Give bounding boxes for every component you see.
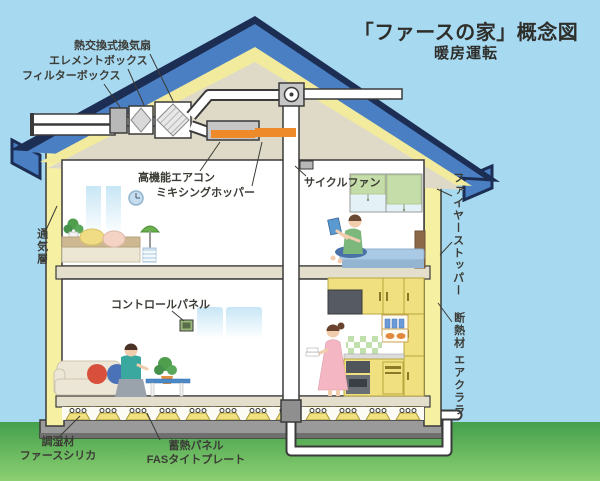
cycle-fan-unit [300, 161, 313, 169]
fas-house-concept-diagram: 「ファースの家」概念図 暖房運転 熱交換式換気扇 エレメントボックス フィルター… [0, 0, 600, 481]
duct-cap [30, 113, 34, 136]
attic-right-duct [304, 89, 402, 99]
right-wall [424, 168, 441, 426]
heat-exchanger-unit [155, 102, 191, 138]
window [86, 186, 101, 236]
countertop [344, 354, 404, 359]
label-heat-storage-panel: 蓄熱パネル [128, 440, 264, 454]
heated-air-flow [255, 128, 296, 137]
label-heat-exchange-fan: 熱交換式換気扇 [74, 40, 151, 54]
range-hood [328, 290, 362, 314]
label-fire-stopper: ファイヤーストッパー [451, 172, 464, 297]
element-box-unit [129, 106, 153, 134]
label-heat-panel: 蓄熱パネル FASタイトプレート [128, 440, 264, 468]
filter-box-unit [110, 108, 127, 133]
label-heat-storage-brand: FASタイトプレート [128, 454, 264, 468]
label-humidity: 調湿材 ファースシリカ [6, 436, 110, 464]
label-insulation-material: 断熱材 [453, 312, 465, 350]
underfloor-duct-box [281, 400, 301, 422]
circulation-fan-unit [279, 83, 304, 106]
exhaust-duct [33, 125, 115, 135]
central-duct [283, 104, 299, 402]
label-filter-box: フィルターボックス [22, 70, 120, 84]
label-control-panel: コントロールパネル [111, 299, 210, 313]
underfloor [62, 406, 424, 420]
label-ventilation-layer: 通気層 [35, 228, 48, 266]
dishwasher [383, 362, 403, 394]
window [106, 186, 121, 236]
label-element-box: エレメントボックス [49, 55, 148, 69]
label-cycle-fan: サイクルファン [304, 177, 380, 191]
first-floor-band [56, 396, 430, 407]
backsplash-tiles [346, 336, 382, 356]
label-humidity-brand: ファースシリカ [6, 450, 110, 464]
label-insulation: 断熱材 エアクララ [452, 312, 465, 417]
intake-duct [33, 114, 115, 124]
label-high-function-aircon: 高機能エアコン [138, 172, 215, 186]
label-humidity-material: 調湿材 [6, 436, 110, 450]
stove [346, 361, 370, 373]
control-panel-device [180, 320, 193, 331]
curtain [226, 307, 262, 339]
label-mixing-hopper: ミキシングホッパー [156, 187, 255, 201]
diagram-title: 「ファースの家」概念図 [336, 16, 596, 45]
diagram-subtitle: 暖房運転 [336, 42, 596, 63]
air-conditioner-unit [207, 121, 259, 140]
shelf-with-jars [382, 315, 408, 342]
clock [129, 191, 143, 205]
label-insulation-brand: エアクララ [453, 354, 465, 417]
